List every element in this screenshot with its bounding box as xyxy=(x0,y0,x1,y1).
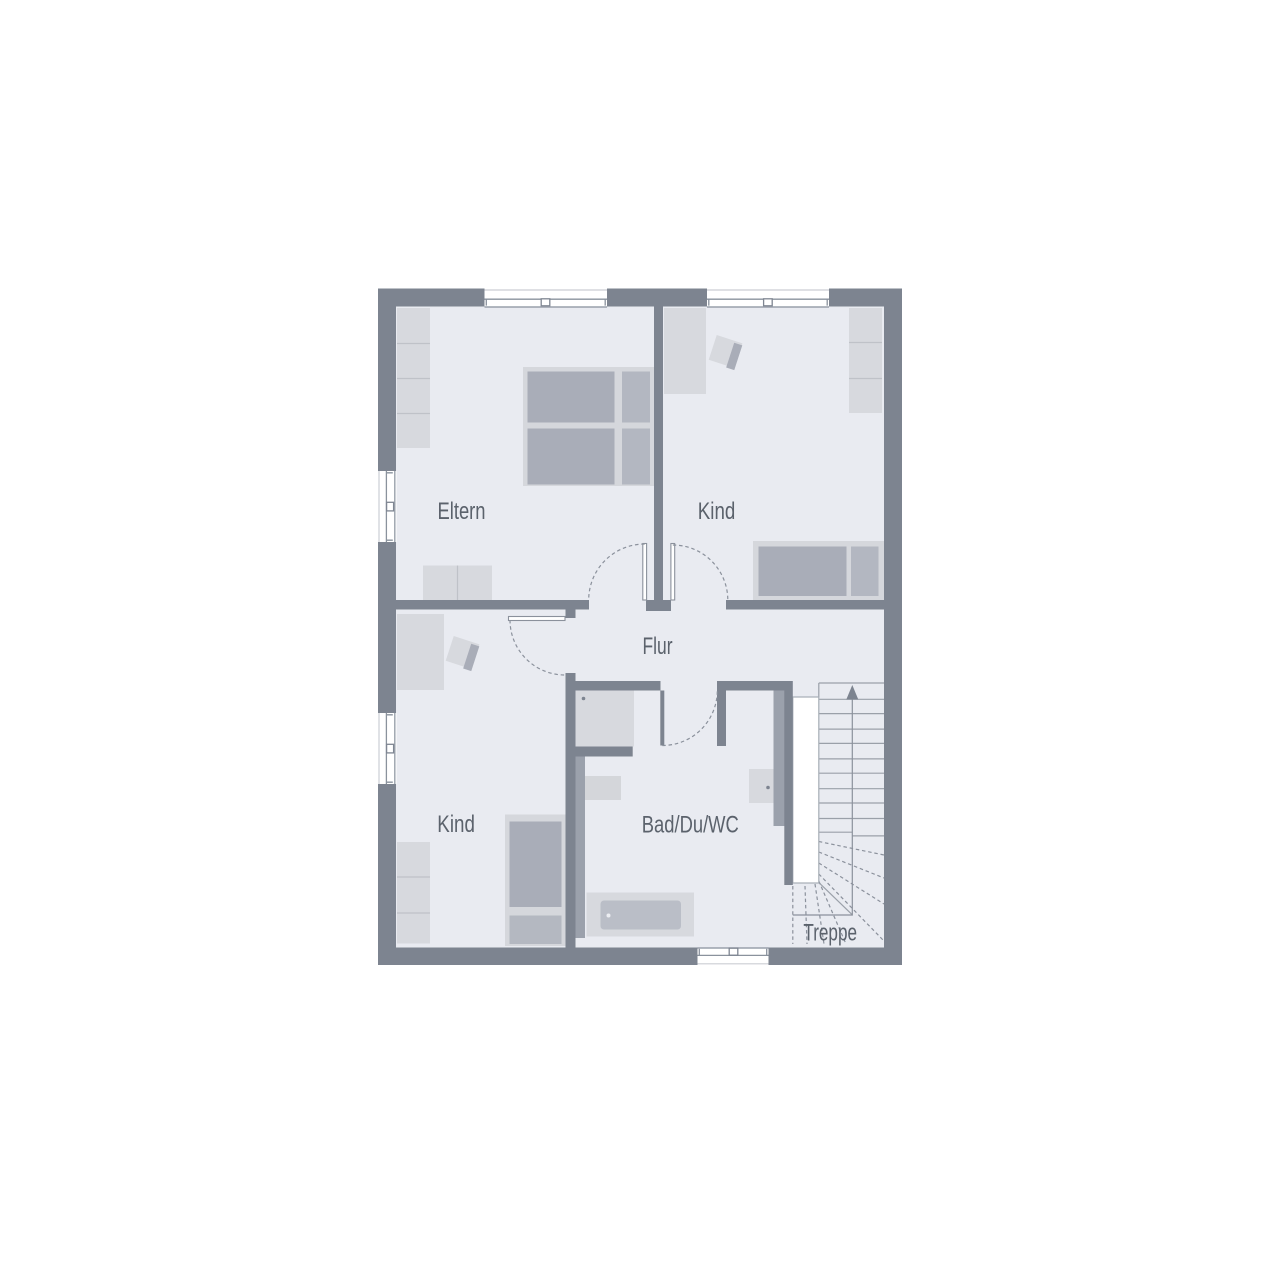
svg-text:Bad/Du/WC: Bad/Du/WC xyxy=(642,812,739,839)
svg-text:Treppe: Treppe xyxy=(803,920,857,947)
svg-text:Flur: Flur xyxy=(643,633,673,660)
svg-text:Kind: Kind xyxy=(437,811,475,838)
svg-text:Eltern: Eltern xyxy=(438,498,486,525)
svg-text:Kind: Kind xyxy=(698,498,736,525)
